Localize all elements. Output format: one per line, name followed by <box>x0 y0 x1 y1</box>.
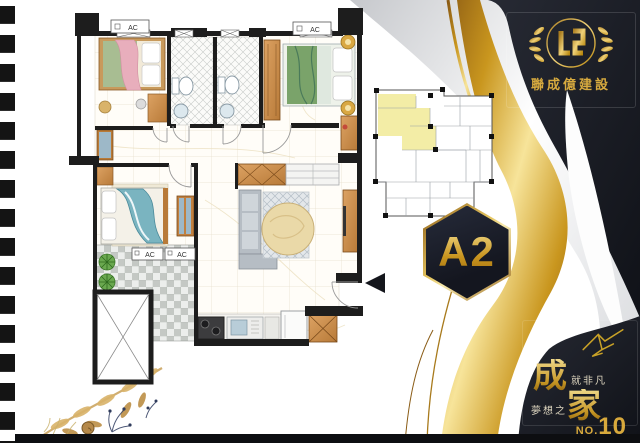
project-number-label: NO. <box>576 426 599 437</box>
desk <box>97 167 113 185</box>
slogan-char-jia: 家 <box>567 389 601 423</box>
toilet-icon <box>172 77 193 95</box>
pillow <box>102 191 116 213</box>
stove-icon <box>198 317 224 339</box>
sink-icon <box>220 104 234 118</box>
pillow <box>333 76 352 100</box>
svg-text:AC: AC <box>128 25 138 32</box>
ac-box: AC <box>293 22 331 35</box>
brand-logo-icon <box>525 13 617 73</box>
floor-plan: AC AC AC AC <box>55 0 375 400</box>
brand-logo-block: 聯成億建設 <box>506 12 636 108</box>
stool <box>99 101 111 113</box>
ac-box: AC <box>132 248 163 260</box>
project-number-value: 10 <box>598 415 627 439</box>
laurel-right-icon <box>597 26 614 64</box>
plant-icon <box>99 254 115 270</box>
wood-cabinet <box>238 164 286 185</box>
chair <box>136 99 146 109</box>
plant-icon <box>99 274 115 290</box>
svg-text:AC: AC <box>177 252 187 259</box>
wardrobe <box>264 40 280 120</box>
gold-accent-line-bottom2 <box>405 330 433 443</box>
bathroom-2 <box>216 37 261 125</box>
svg-text:AC: AC <box>310 27 320 34</box>
pillow <box>142 43 160 63</box>
unit-badge: A2 <box>423 203 511 301</box>
slogan-block: 成 就非凡 夢想之 家 NO. 10 <box>522 320 638 426</box>
pillow <box>102 218 116 240</box>
brand-name: 聯成億建設 <box>531 74 611 93</box>
ac-box: AC <box>111 20 149 33</box>
round-table <box>262 203 314 255</box>
headboard <box>163 188 168 244</box>
spiral-binding <box>0 0 15 443</box>
entry-wood-tile <box>309 315 337 342</box>
desk <box>148 94 167 122</box>
shelf-cabinet <box>286 164 339 185</box>
brochure-page: AC AC AC AC <box>0 0 640 443</box>
bird-icon <box>579 325 627 359</box>
brand-monogram-icon <box>561 31 583 53</box>
bathroom-1 <box>170 37 213 125</box>
svg-text:AC: AC <box>145 252 155 259</box>
snail-icon <box>82 422 94 434</box>
slogan-small-2: 夢想之 <box>531 407 567 417</box>
void-shaft <box>95 292 151 382</box>
toilet-icon <box>218 76 239 94</box>
pillow <box>333 48 352 72</box>
fridge-icon <box>281 311 307 342</box>
ac-box: AC <box>165 248 195 260</box>
laurel-left-icon <box>529 26 546 64</box>
slogan-char-cheng: 成 <box>533 359 567 393</box>
sink-icon <box>174 104 188 118</box>
unit-badge-label: A2 <box>438 228 496 276</box>
unit-badge-face: A2 <box>426 206 509 299</box>
entrance-arrow-icon <box>365 273 385 293</box>
dresser <box>341 116 358 150</box>
pillow <box>142 65 160 85</box>
kitchen-sink-icon <box>227 317 263 339</box>
